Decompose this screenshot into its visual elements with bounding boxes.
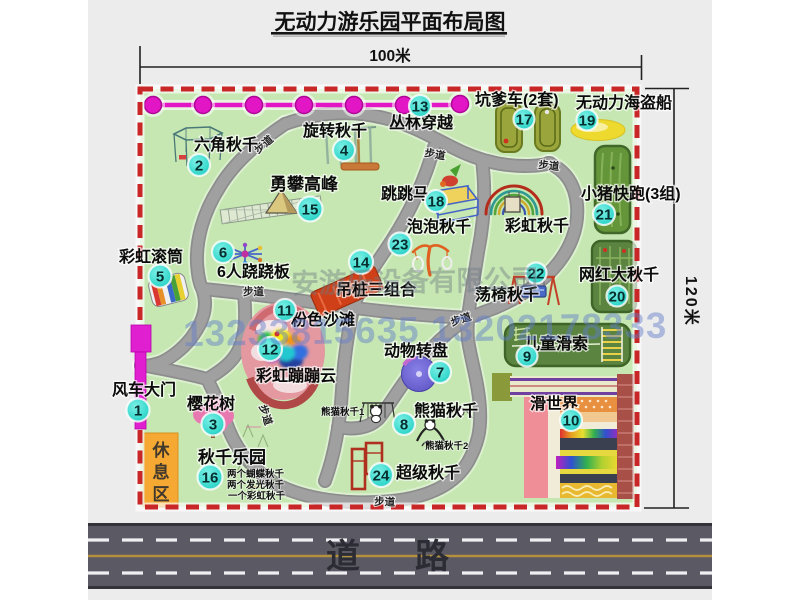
svg-text:21: 21 [596,207,613,224]
svg-text:一个彩虹秋千: 一个彩虹秋千 [228,490,286,502]
svg-text:熊猫秋千2: 熊猫秋千2 [425,440,468,452]
svg-text:6: 6 [219,245,227,262]
svg-text:彩虹滚筒: 彩虹滚筒 [118,247,183,266]
svg-text:2: 2 [195,158,203,175]
svg-text:六角秋千: 六角秋千 [194,135,258,154]
svg-text:安游乐设备有限公司: 安游乐设备有限公司 [291,264,539,299]
svg-text:4: 4 [340,143,349,160]
svg-text:18: 18 [428,194,445,211]
svg-text:100米: 100米 [369,46,411,65]
svg-text:两个发光秋千: 两个发光秋千 [227,479,285,491]
svg-text:7: 7 [436,365,444,382]
svg-text:道: 道 [326,538,360,576]
svg-text:1: 1 [134,403,142,420]
svg-text:熊猫秋千: 熊猫秋千 [414,401,478,420]
svg-text:15: 15 [302,202,319,219]
svg-text:23: 23 [392,237,409,254]
svg-text:泡泡秋千: 泡泡秋千 [407,217,471,236]
svg-text:两个蝴蝶秋千: 两个蝴蝶秋千 [227,468,285,480]
svg-text:5: 5 [156,269,164,286]
svg-text:网红大秋千: 网红大秋千 [579,265,659,284]
svg-text:13: 13 [412,99,429,116]
svg-text:10: 10 [563,413,580,430]
svg-text:彩虹蹦蹦云: 彩虹蹦蹦云 [255,366,336,385]
svg-text:区: 区 [153,485,170,504]
svg-text:步道: 步道 [243,285,264,298]
svg-text:坑爹车(2套): 坑爹车(2套) [475,90,559,109]
svg-text:勇攀高峰: 勇攀高峰 [270,174,339,194]
svg-text:超级秋千: 超级秋千 [395,463,460,482]
svg-text:步道: 步道 [374,495,396,509]
svg-text:20: 20 [609,289,626,306]
svg-text:跳跳马: 跳跳马 [381,184,429,203]
svg-text:熊猫秋千1: 熊猫秋千1 [321,406,365,418]
svg-text:风车大门: 风车大门 [112,380,176,399]
svg-text:16: 16 [202,470,219,487]
svg-text:19: 19 [579,113,596,130]
svg-text:3: 3 [209,417,217,434]
svg-text:步道: 步道 [538,158,561,173]
svg-text:休: 休 [152,440,171,460]
svg-text:路: 路 [415,538,450,576]
svg-text:旋转秋千: 旋转秋千 [302,121,367,140]
svg-text:8: 8 [400,417,408,434]
svg-text:彩虹秋千: 彩虹秋千 [504,216,569,235]
svg-text:24: 24 [373,468,390,485]
svg-text:120米: 120米 [682,276,701,327]
svg-text:6人跷跷板: 6人跷跷板 [217,262,291,281]
svg-text:樱花树: 樱花树 [187,394,235,413]
svg-text:9: 9 [523,349,531,366]
svg-text:17: 17 [516,112,533,129]
svg-text:息: 息 [153,462,170,482]
svg-text:13233815635 13202178333: 13233815635 13202178333 [183,305,668,354]
svg-text:无动力游乐园平面布局图: 无动力游乐园平面布局图 [275,10,506,34]
svg-text:小猪快跑(3组): 小猪快跑(3组) [581,184,681,203]
